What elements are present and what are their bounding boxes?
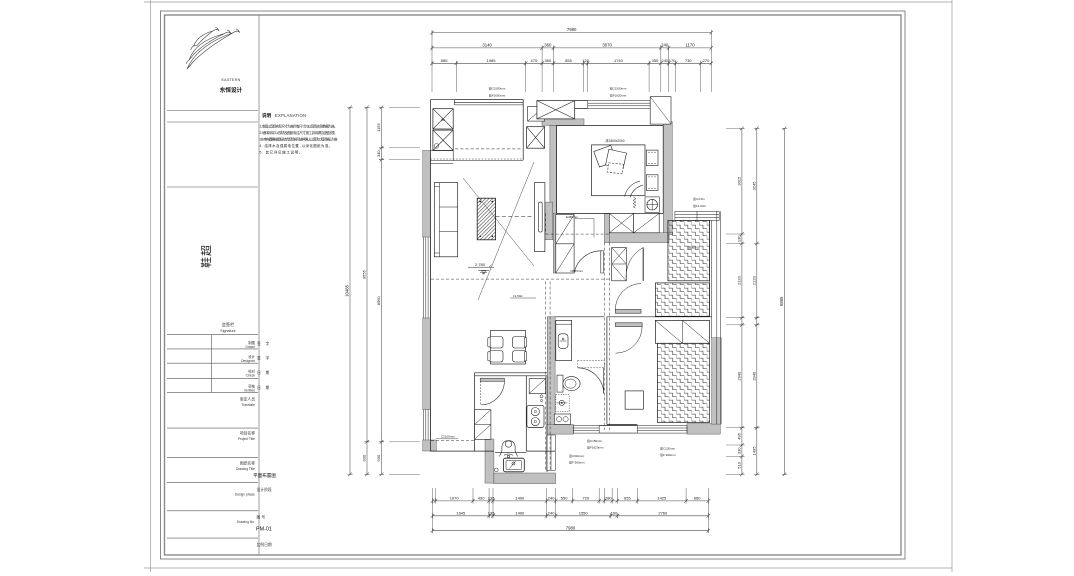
svg-text:Signature: Signature — [220, 329, 235, 333]
svg-text:3140: 3140 — [482, 43, 492, 48]
svg-text:日: 日 — [257, 371, 261, 375]
svg-text:930: 930 — [376, 454, 381, 461]
svg-text:项目名称: 项目名称 — [240, 431, 255, 436]
svg-text:EXPLANATION: EXPLANATION — [275, 113, 306, 118]
svg-text:680: 680 — [694, 496, 701, 501]
svg-text:7980: 7980 — [566, 525, 576, 530]
svg-text:1740: 1740 — [614, 58, 624, 63]
svg-text:东恒设计: 东恒设计 — [220, 86, 243, 94]
svg-text:PM-01: PM-01 — [256, 527, 272, 533]
svg-text:8060: 8060 — [376, 296, 381, 306]
svg-text:280: 280 — [605, 496, 612, 501]
svg-text:5. 其它详见施工说明。: 5. 其它详见施工说明。 — [260, 150, 303, 155]
svg-text:2760: 2760 — [658, 510, 668, 515]
svg-text:窗C4.5m: 窗C4.5m — [693, 196, 705, 201]
svg-text:2.780: 2.780 — [475, 262, 486, 267]
svg-text:160: 160 — [611, 510, 618, 515]
svg-text:655: 655 — [624, 496, 631, 501]
svg-text:审定人员: 审定人员 — [240, 397, 255, 402]
svg-text:窗C1500mm: 窗C1500mm — [489, 86, 506, 91]
svg-text:平面布置图: 平面布置图 — [253, 472, 276, 479]
svg-text:±1.50m: ±1.50m — [513, 294, 523, 298]
svg-text:2. 墙体拆除"以现场及图纸标注尺寸施工,拆除需,加固处理。: 2. 墙体拆除"以现场及图纸标注尺寸施工,拆除需,加固处理。 — [260, 130, 338, 135]
svg-text:730: 730 — [685, 58, 692, 63]
svg-text:窗C150mm: 窗C150mm — [587, 438, 603, 443]
svg-text:窗F1.62m: 窗F1.62m — [693, 203, 707, 208]
svg-text:6#: 6# — [441, 118, 445, 122]
svg-text:240: 240 — [661, 58, 668, 63]
svg-text:685: 685 — [441, 58, 448, 63]
svg-text:签: 签 — [257, 356, 261, 361]
svg-text:Verified: Verified — [244, 389, 255, 393]
svg-text:9555: 9555 — [362, 269, 367, 279]
svg-text:Project Title: Project Title — [238, 437, 255, 441]
svg-text:会签栏: 会签栏 — [222, 321, 235, 328]
svg-text:1070: 1070 — [450, 496, 460, 501]
svg-text:1985: 1985 — [487, 58, 497, 63]
svg-text:签: 签 — [257, 341, 261, 346]
svg-text:1435: 1435 — [751, 446, 756, 456]
svg-text:360: 360 — [544, 43, 552, 48]
svg-text:窗F 900mm: 窗F 900mm — [660, 452, 676, 457]
svg-text:240: 240 — [548, 496, 555, 501]
svg-text:Drawn: Drawn — [245, 345, 255, 349]
svg-text:期: 期 — [266, 370, 270, 375]
svg-text:Drawing Title: Drawing Title — [236, 467, 255, 471]
svg-text:1550: 1550 — [579, 510, 589, 515]
svg-text:495: 495 — [737, 432, 742, 439]
svg-text:比例日期: 比例日期 — [257, 542, 272, 547]
svg-text:2940: 2940 — [737, 371, 742, 381]
svg-text:4. 给排水及强弱电位置 ,以深化图纸为准。: 4. 给排水及强弱电位置 ,以深化图纸为准。 — [260, 143, 333, 148]
svg-text:3015: 3015 — [737, 176, 742, 186]
svg-text:550: 550 — [561, 496, 568, 501]
svg-text:Designed: Designed — [241, 359, 255, 363]
svg-text:855: 855 — [565, 58, 572, 63]
svg-text:470: 470 — [531, 58, 538, 63]
svg-text:Check: Check — [246, 373, 256, 377]
svg-text:说明: 说明 — [262, 112, 272, 119]
svg-text:510: 510 — [737, 461, 742, 468]
svg-text:Drawing No.: Drawing No. — [237, 520, 255, 524]
svg-text:135: 135 — [488, 496, 495, 501]
svg-text:340: 340 — [376, 150, 381, 157]
svg-text:窗C010mm: 窗C010mm — [569, 453, 585, 458]
svg-text:3070: 3070 — [602, 43, 612, 48]
svg-text:3245: 3245 — [751, 181, 756, 191]
svg-text:9885: 9885 — [779, 296, 784, 306]
svg-text:鞋超: 鞋超 — [199, 244, 213, 268]
svg-text:1490: 1490 — [515, 510, 525, 515]
svg-text:2120: 2120 — [737, 275, 742, 285]
svg-text:字: 字 — [266, 341, 270, 346]
svg-text:135: 135 — [488, 510, 495, 515]
svg-text:130: 130 — [737, 235, 742, 242]
svg-text:字: 字 — [266, 356, 270, 361]
svg-text:2940: 2940 — [751, 371, 756, 381]
svg-text:图纸名称: 图纸名称 — [240, 461, 255, 466]
svg-text:床1800x2000: 床1800x2000 — [606, 138, 625, 143]
svg-text:M845mm: M845mm — [571, 269, 584, 273]
svg-text:Translate: Translate — [241, 403, 255, 407]
svg-text:窗F1600mm: 窗F1600mm — [489, 93, 506, 98]
svg-text:720: 720 — [583, 496, 590, 501]
svg-text:930: 930 — [362, 454, 367, 461]
svg-text:270: 270 — [703, 58, 710, 63]
svg-text:阳台0.05: 阳台0.05 — [688, 245, 700, 250]
svg-text:设计阶段: 设计阶段 — [257, 487, 272, 492]
svg-text:1645: 1645 — [456, 510, 466, 515]
svg-text:360: 360 — [544, 58, 551, 63]
svg-text:120: 120 — [582, 58, 589, 63]
svg-text:10485: 10485 — [345, 284, 350, 297]
svg-text:图 号: 图 号 — [257, 514, 266, 519]
svg-text:3. 水电布置需按图纸 - 结合现场实际放样确认 ,以现场工: 3. 水电布置需按图纸 - 结合现场实际放样确认 ,以现场工程师确认为准 — [260, 137, 339, 142]
svg-text:355: 355 — [652, 58, 659, 63]
svg-text:1425: 1425 — [657, 496, 667, 501]
svg-text:490: 490 — [478, 496, 485, 501]
svg-text:330: 330 — [737, 447, 742, 454]
svg-text:窗C120mm: 窗C120mm — [660, 446, 676, 451]
svg-text:C2100mm: C2100mm — [441, 435, 455, 439]
svg-text:170: 170 — [669, 58, 676, 63]
svg-text:期: 期 — [266, 385, 270, 390]
svg-text:240: 240 — [548, 510, 555, 515]
svg-text:1. 本图以现场实际尺寸为准,所有尺寸,均以现场,实测数据为: 1. 本图以现场实际尺寸为准,所有尺寸,均以现场,实测数据为准。 — [260, 124, 338, 129]
svg-text:日: 日 — [257, 386, 261, 390]
svg-text:窗F 900mm: 窗F 900mm — [569, 460, 585, 465]
svg-text:窗F1620mm: 窗F1620mm — [610, 93, 627, 98]
svg-text:1155: 1155 — [376, 123, 381, 132]
svg-text:1170: 1170 — [685, 43, 695, 48]
svg-text:2120: 2120 — [751, 275, 756, 285]
svg-text:240: 240 — [661, 43, 669, 48]
svg-text:7980: 7980 — [567, 27, 577, 32]
svg-text:窗C1500mm: 窗C1500mm — [610, 86, 627, 91]
svg-text:窗F1620mm: 窗F1620mm — [587, 445, 604, 450]
svg-text:Design phase: Design phase — [235, 493, 255, 497]
svg-text:EASTERN: EASTERN — [221, 78, 240, 82]
svg-text:1490: 1490 — [515, 496, 525, 501]
